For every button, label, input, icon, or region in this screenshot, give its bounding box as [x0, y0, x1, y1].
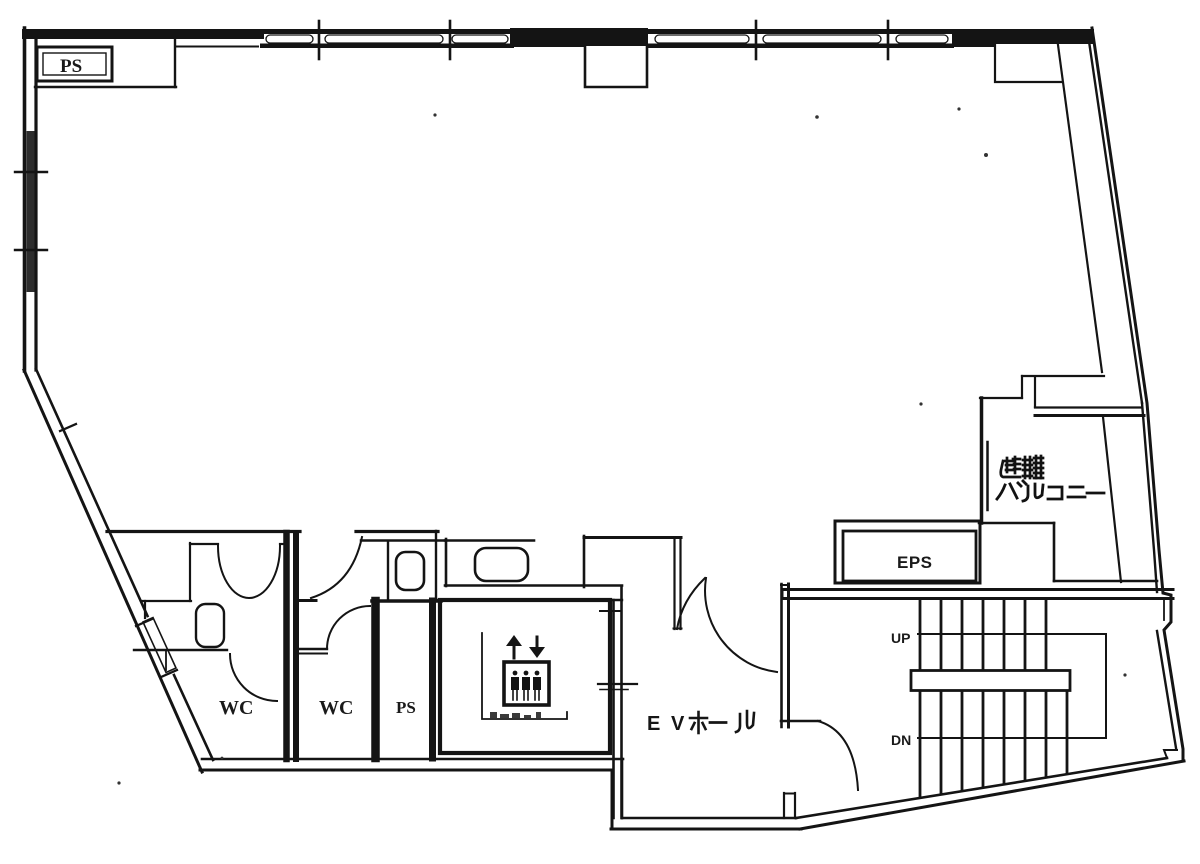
svg-text:V: V — [671, 713, 685, 735]
svg-text:PS: PS — [60, 56, 82, 77]
svg-text:WC: WC — [219, 697, 253, 719]
svg-text:PS: PS — [396, 698, 416, 717]
svg-text:UP: UP — [891, 630, 910, 646]
svg-text:DN: DN — [891, 732, 911, 748]
svg-text:EPS: EPS — [897, 553, 933, 572]
svg-text:WC: WC — [319, 697, 353, 719]
svg-text:E: E — [647, 713, 660, 735]
